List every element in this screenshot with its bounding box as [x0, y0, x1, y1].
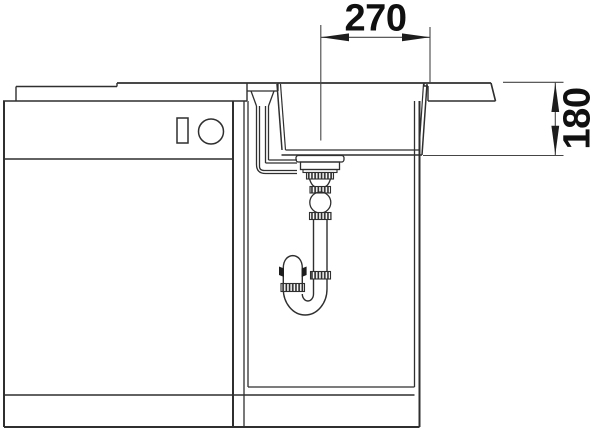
drawing-background: [0, 0, 600, 430]
sink-technical-drawing-canvas: 270 180: [0, 0, 600, 430]
trap-riser-nut: [281, 284, 305, 292]
dim180-label: 180: [557, 88, 599, 150]
trap-pipe-nut: [311, 272, 331, 280]
sink-installation-drawing: 270 180: [0, 0, 600, 430]
drain-nut-lower: [310, 213, 332, 220]
strainer-knurled-ring: [307, 173, 334, 180]
dim270-label: 270: [345, 0, 407, 40]
